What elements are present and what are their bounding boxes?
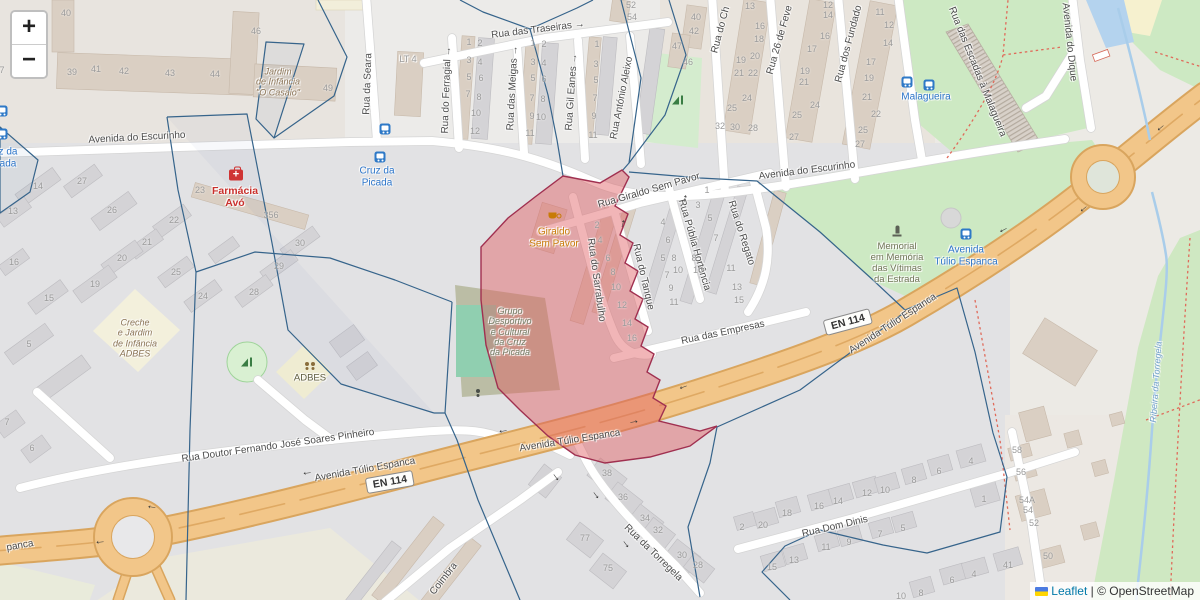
roundabout-west <box>103 507 163 567</box>
roundabout-east <box>1079 153 1127 201</box>
attribution: Leaflet | © OpenStreetMap <box>1030 582 1200 600</box>
attribution-separator: | <box>1087 584 1097 598</box>
ukraine-flag-icon <box>1035 587 1048 596</box>
zoom-control: + − <box>10 10 48 79</box>
base-map <box>0 0 1200 600</box>
openstreetmap-link[interactable]: © OpenStreetMap <box>1097 584 1194 598</box>
zoom-out-button[interactable]: − <box>12 45 46 77</box>
zoom-in-button[interactable]: + <box>12 12 46 44</box>
leaflet-link[interactable]: Leaflet <box>1051 584 1087 598</box>
map-viewport[interactable]: Avenida do EscurinhoAvenida do Escurinho… <box>0 0 1200 600</box>
traffic-island <box>941 208 961 228</box>
